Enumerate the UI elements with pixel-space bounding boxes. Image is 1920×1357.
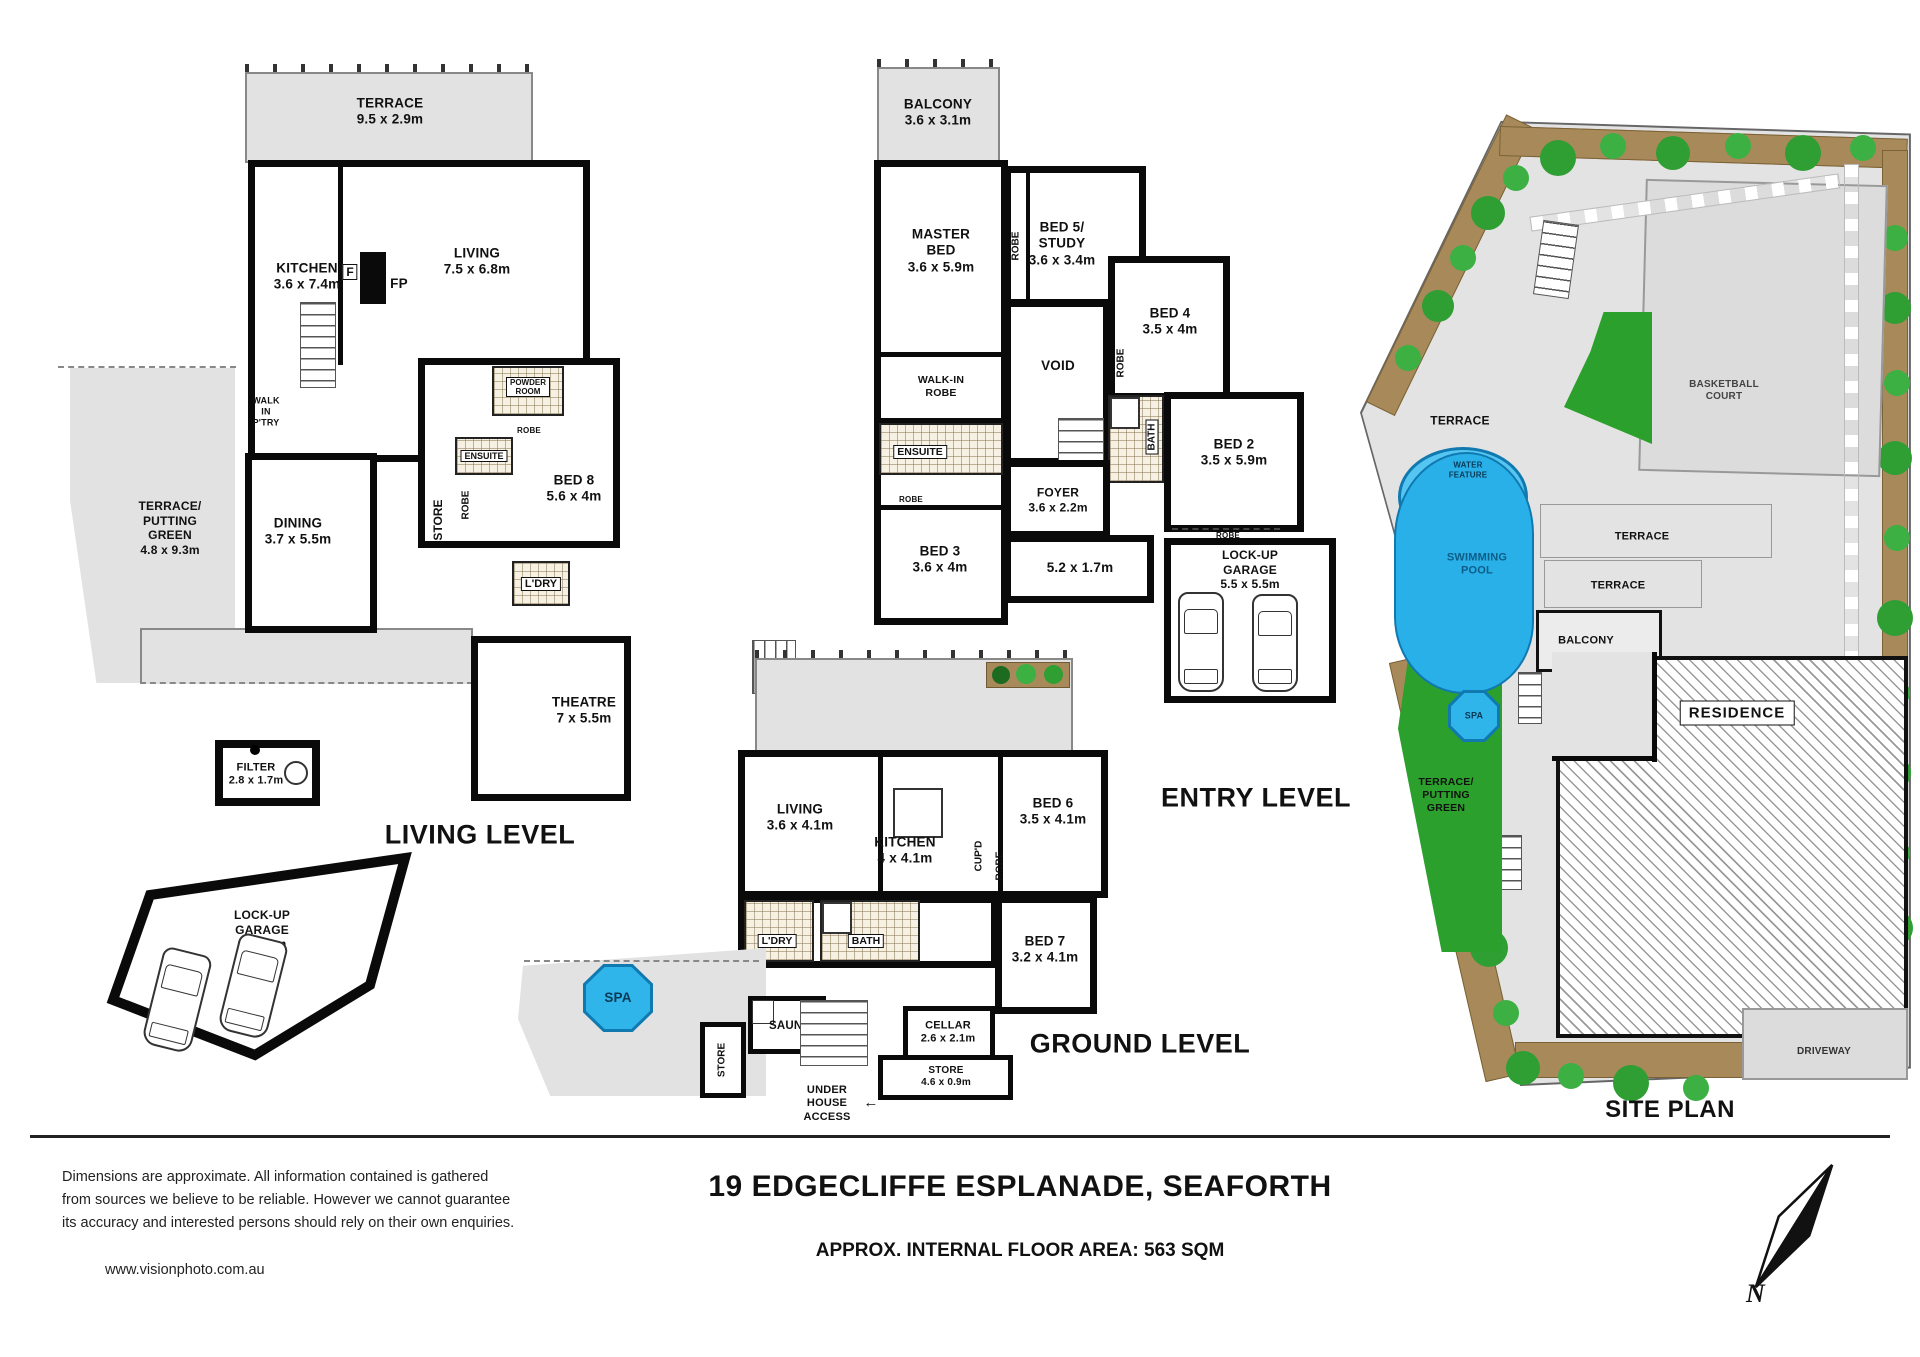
- fridge-label: F: [342, 264, 357, 280]
- kitchen-label: KITCHEN3.6 x 7.4m: [274, 261, 341, 294]
- water-feature-label: WATERFEATURE: [1449, 460, 1488, 480]
- boundary-dashed-line: [524, 960, 759, 962]
- entry-level-title: ENTRY LEVEL: [1161, 783, 1351, 814]
- fireplace-label: FP: [390, 276, 408, 292]
- balcony-label: BALCONY: [1558, 634, 1614, 647]
- filter-label: FILTER2.8 x 1.7m: [229, 762, 284, 789]
- fence-ticks: [755, 650, 1073, 658]
- driveway-area: [1742, 1008, 1908, 1080]
- compass-icon: N: [1742, 1148, 1842, 1308]
- website-link[interactable]: www.visionphoto.com.au: [105, 1262, 265, 1278]
- site-plan-title: SITE PLAN: [1605, 1096, 1735, 1124]
- wall: [1552, 756, 1657, 761]
- walk-in-robe-label: WALK-INROBE: [918, 374, 964, 400]
- bed5-study-label: BED 5/STUDY3.6 x 3.4m: [1029, 219, 1096, 268]
- residence-label: RESIDENCE: [1680, 701, 1795, 726]
- wall: [878, 505, 1004, 510]
- spa-label: SPA: [1465, 711, 1483, 722]
- tree: [1016, 664, 1036, 684]
- void-label: VOID: [1041, 358, 1075, 374]
- robe-label: ROBE: [1216, 531, 1240, 541]
- hall-dims-label: 5.2 x 1.7m: [1047, 560, 1114, 576]
- shower: [822, 902, 852, 934]
- laundry-label: L'DRY: [758, 934, 797, 948]
- spa-label: SPA: [604, 990, 631, 1006]
- bath-label: BATH: [1146, 419, 1159, 454]
- powder-room-label: POWDERROOM: [506, 377, 550, 397]
- trees: [1395, 345, 1421, 371]
- robe-label: ROBE: [995, 852, 1006, 881]
- robe-label: ROBE: [899, 495, 923, 505]
- balcony-label: BALCONY3.6 x 3.1m: [904, 97, 972, 130]
- robe-label: ROBE: [1116, 349, 1127, 378]
- divider: [30, 1135, 1890, 1138]
- store-label: STORE: [431, 499, 445, 540]
- ground-level-title: GROUND LEVEL: [1030, 1029, 1251, 1060]
- bed4-label: BED 43.5 x 4m: [1143, 306, 1198, 339]
- terrace-label: TERRACE: [1430, 414, 1489, 429]
- wall: [878, 754, 883, 894]
- store-label: STORE: [717, 1043, 728, 1077]
- cellar-label: CELLAR2.6 x 2.1m: [921, 1020, 976, 1047]
- shrub: [992, 666, 1010, 684]
- arrow-left-icon: ←: [863, 1094, 878, 1112]
- robe-label: ROBE: [517, 426, 541, 436]
- boundary-dashed-line: [58, 366, 236, 368]
- residence-notch: [1552, 652, 1656, 760]
- bed3-label: BED 33.6 x 4m: [913, 544, 968, 577]
- filter-circle: [284, 761, 308, 785]
- foyer-label: FOYER3.6 x 2.2m: [1028, 485, 1087, 514]
- putting-green-label: TERRACE/PUTTINGGREEN: [1418, 776, 1473, 814]
- stairs: [1518, 672, 1542, 724]
- tree: [1044, 665, 1063, 684]
- wall: [878, 352, 1004, 357]
- stairs: [300, 302, 336, 388]
- fireplace-mass: [360, 252, 386, 304]
- wall: [1652, 652, 1657, 762]
- bed7-label: BED 73.2 x 4.1m: [1012, 934, 1079, 967]
- bath-label: BATH: [848, 934, 884, 948]
- cupboard-label: CUP'D: [974, 841, 985, 872]
- terrace-label: TERRACE: [1591, 579, 1646, 592]
- master-bed-label: MASTERBED3.6 x 5.9m: [908, 226, 975, 275]
- theatre-label: THEATRE7 x 5.5m: [552, 695, 616, 728]
- under-house-access-label: UNDERHOUSEACCESS: [803, 1084, 850, 1124]
- shower: [1110, 397, 1140, 429]
- walk-in-pantry-label: WALKINP'TRY: [252, 396, 279, 429]
- robe-label: ROBE: [461, 491, 472, 520]
- laundry-label: L'DRY: [521, 577, 561, 591]
- ensuite-label: ENSUITE: [460, 450, 507, 462]
- robe-label: ROBE: [1011, 232, 1022, 261]
- driveway-label: DRIVEWAY: [1797, 1046, 1851, 1058]
- dining-label: DINING3.7 x 5.5m: [265, 516, 332, 549]
- stairs: [800, 1000, 868, 1066]
- basketball-court-label: BASKETBALLCOURT: [1689, 379, 1759, 403]
- floor-area-note: APPROX. INTERNAL FLOOR AREA: 563 SQM: [620, 1240, 1420, 1262]
- terrace-label: TERRACE9.5 x 2.9m: [357, 96, 424, 129]
- car: [1178, 592, 1224, 692]
- putting-green-label: TERRACE/PUTTINGGREEN4.8 x 9.3m: [139, 499, 202, 558]
- compass-north-letter: N: [1745, 1279, 1766, 1308]
- kitchen-label: KITCHEN4 x 4.1m: [874, 835, 935, 868]
- fence-ticks: [245, 64, 533, 72]
- living-label: LIVING3.6 x 4.1m: [767, 802, 834, 835]
- car: [1252, 594, 1298, 692]
- swimming-pool-label: SWIMMINGPOOL: [1447, 552, 1507, 579]
- living-veranda-area: [140, 628, 473, 684]
- disclaimer-text: Dimensions are approximate. All informat…: [62, 1166, 514, 1236]
- filter-dot: [250, 745, 260, 755]
- bed2-label: BED 23.5 x 5.9m: [1201, 437, 1268, 470]
- kitchen-island: [893, 788, 943, 838]
- floorplan-page: TERRACE9.5 x 2.9m KITCHEN3.6 x 7.4m F FP…: [0, 0, 1920, 1357]
- robe-line: [1172, 528, 1280, 530]
- bed8-label: BED 85.6 x 4m: [547, 473, 602, 506]
- fence-ticks: [877, 59, 1000, 67]
- entry-garage-label: LOCK-UPGARAGE5.5 x 5.5m: [1220, 548, 1279, 592]
- store2-label: STORE4.6 x 0.9m: [921, 1065, 971, 1089]
- garden-bed: [1515, 1042, 1765, 1078]
- ensuite-label: ENSUITE: [893, 445, 947, 459]
- terrace-label: TERRACE: [1615, 530, 1670, 543]
- living-level-title: LIVING LEVEL: [385, 820, 576, 851]
- bed6-label: BED 63.5 x 4.1m: [1020, 796, 1087, 829]
- address-title: 19 EDGECLIFFE ESPLANADE, SEAFORTH: [620, 1170, 1420, 1204]
- living-label: LIVING7.5 x 6.8m: [444, 246, 511, 279]
